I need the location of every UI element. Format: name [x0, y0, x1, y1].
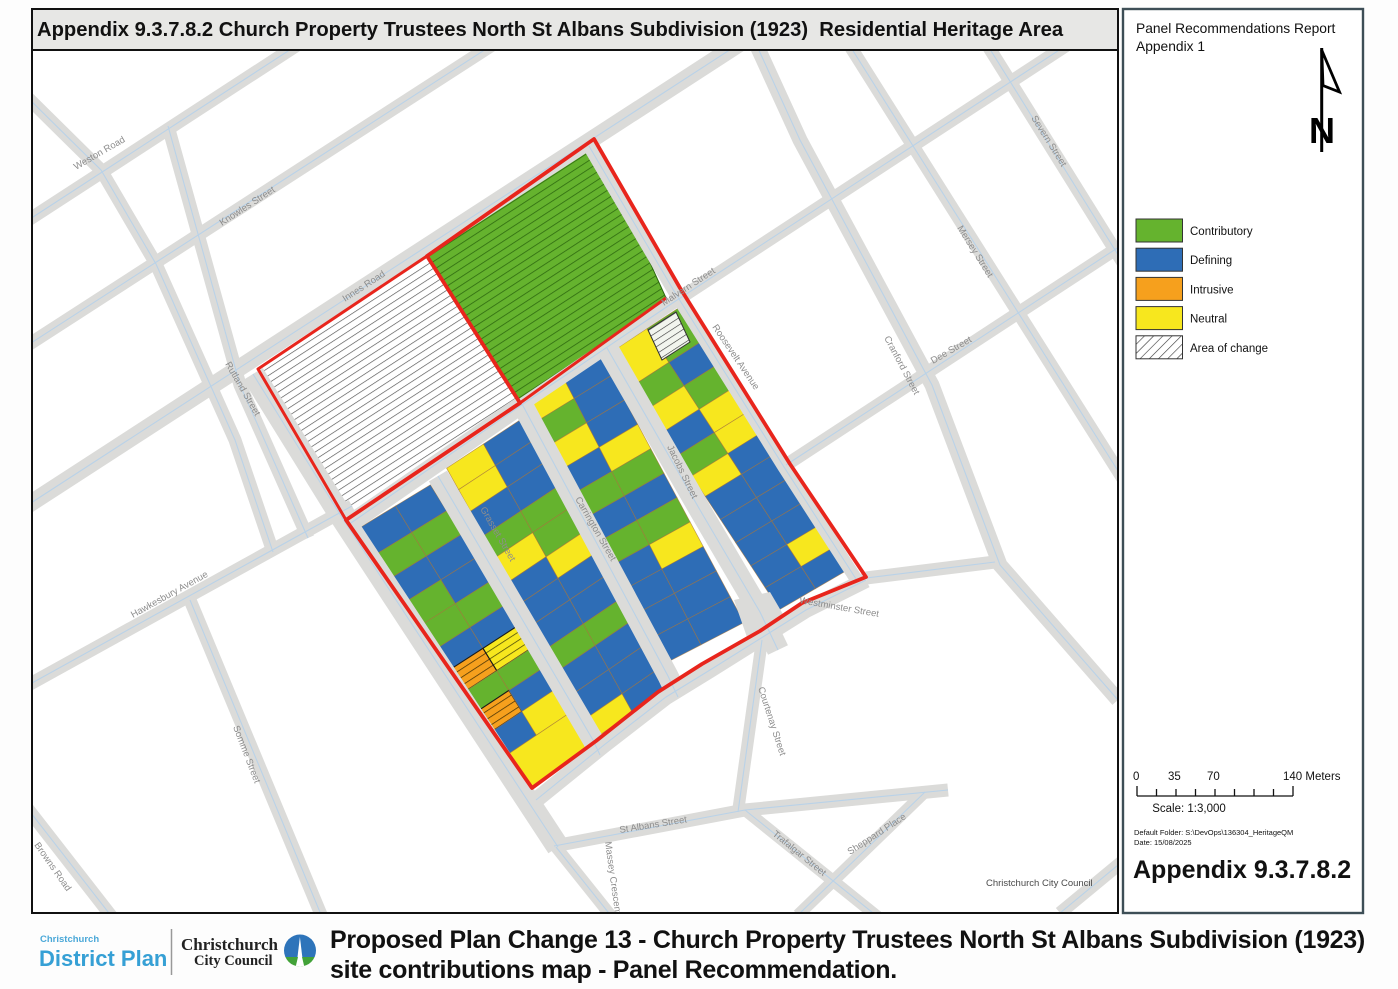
svg-text:Christchurch: Christchurch — [40, 934, 99, 945]
svg-text:N: N — [1309, 110, 1335, 151]
svg-text:City Council: City Council — [194, 953, 273, 969]
svg-text:site contributions map - Panel: site contributions map - Panel Recommend… — [330, 956, 897, 984]
svg-text:Neutral: Neutral — [1190, 314, 1227, 326]
svg-text:Christchurch City Council: Christchurch City Council — [986, 878, 1093, 889]
svg-text:Contributory: Contributory — [1190, 226, 1253, 238]
svg-text:District Plan: District Plan — [39, 946, 167, 971]
svg-text:0: 0 — [1133, 771, 1139, 783]
svg-text:140 Meters: 140 Meters — [1283, 771, 1341, 783]
svg-text:Christchurch: Christchurch — [181, 935, 279, 954]
svg-text:Appendix 1: Appendix 1 — [1136, 39, 1205, 54]
svg-text:Default Folder: S:\DevOps\1363: Default Folder: S:\DevOps\136304_Heritag… — [1134, 828, 1293, 837]
svg-text:35: 35 — [1168, 771, 1181, 783]
svg-text:Appendix 9.3.7.8.2: Appendix 9.3.7.8.2 — [1133, 856, 1351, 884]
svg-text:Proposed Plan Change 13 - Chur: Proposed Plan Change 13 - Church Propert… — [330, 926, 1365, 954]
svg-text:Defining: Defining — [1190, 255, 1232, 267]
svg-text:Scale: 1:3,000: Scale: 1:3,000 — [1152, 803, 1226, 815]
svg-text:Appendix 9.3.7.8.2 Church Prop: Appendix 9.3.7.8.2 Church Property Trust… — [37, 19, 1064, 41]
svg-text:Panel Recommendations Report: Panel Recommendations Report — [1136, 21, 1336, 36]
svg-text:Intrusive: Intrusive — [1190, 284, 1233, 296]
svg-text:70: 70 — [1207, 771, 1220, 783]
svg-text:Area of change: Area of change — [1190, 343, 1268, 355]
svg-text:Date: 15/08/2025: Date: 15/08/2025 — [1134, 838, 1192, 847]
